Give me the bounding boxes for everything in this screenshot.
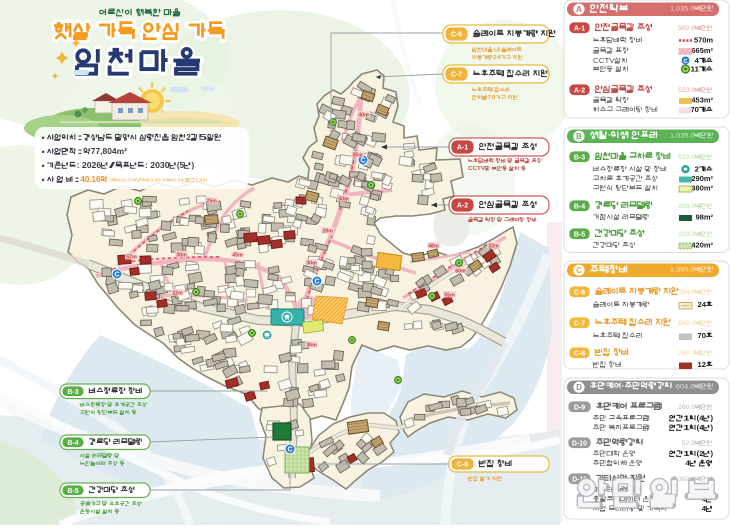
- svg-text:(5: (5: [177, 161, 185, 170]
- svg-text:: 2026: : 2026: [77, 161, 102, 170]
- svg-text:1,035.0: 1,035.0: [670, 133, 695, 140]
- svg-text:B-5: B-5: [574, 232, 585, 239]
- svg-text:A-1: A-1: [457, 145, 468, 152]
- svg-text:840.0: 840.0: [678, 320, 696, 327]
- svg-text:C-6: C-6: [451, 32, 462, 39]
- svg-text:218.3: 218.3: [678, 231, 696, 238]
- svg-text:CCTV: CCTV: [468, 166, 485, 172]
- svg-text:B-3: B-3: [574, 155, 585, 162]
- svg-text:C: C: [576, 266, 582, 275]
- svg-text:12: 12: [697, 360, 705, 369]
- svg-text:24: 24: [697, 300, 706, 309]
- svg-text:A-1: A-1: [574, 26, 585, 33]
- svg-text:B-5: B-5: [67, 488, 78, 495]
- svg-text:A-2: A-2: [457, 203, 468, 210]
- svg-text:3.45 /: 3.45 /: [150, 177, 165, 182]
- svg-text:1,035.0: 1,035.0: [670, 6, 695, 13]
- svg-text:B-4: B-4: [574, 204, 585, 211]
- svg-text:160.0: 160.0: [678, 404, 696, 411]
- svg-text:30m: 30m: [306, 260, 317, 266]
- svg-text:): ): [191, 161, 194, 170]
- svg-text:C: C: [684, 59, 688, 65]
- svg-text:453m²: 453m²: [691, 96, 713, 105]
- svg-text:28m: 28m: [322, 228, 333, 234]
- svg-text:C: C: [314, 279, 319, 286]
- svg-text:A: A: [576, 5, 582, 14]
- svg-text:B: B: [576, 132, 582, 141]
- svg-text:: 2030: : 2030: [145, 161, 170, 170]
- svg-text:(2: (2: [697, 449, 704, 458]
- svg-text:B-3: B-3: [67, 389, 78, 396]
- svg-text:·: ·: [622, 380, 625, 390]
- svg-text:C-8: C-8: [574, 351, 585, 358]
- svg-text:298.0: 298.0: [678, 203, 696, 210]
- svg-text:50m: 50m: [338, 196, 349, 202]
- svg-text:11: 11: [690, 65, 698, 74]
- svg-text:B-4: B-4: [67, 440, 78, 447]
- svg-text:420m²: 420m²: [691, 241, 713, 250]
- svg-text:CCTV: CCTV: [593, 56, 615, 65]
- svg-text:1: 1: [683, 449, 689, 458]
- svg-text:533.0: 533.0: [678, 87, 696, 94]
- svg-text:380m²: 380m²: [691, 184, 713, 193]
- svg-text:260.0: 260.0: [678, 350, 696, 357]
- svg-text:8.04 /: 8.04 /: [173, 177, 188, 182]
- svg-text:A-2: A-2: [574, 88, 585, 95]
- svg-text:77,804m²: 77,804m²: [91, 147, 128, 156]
- svg-text:264.0: 264.0: [678, 289, 696, 296]
- svg-text:52.0: 52.0: [682, 440, 696, 447]
- svg-text:C-7: C-7: [574, 321, 585, 328]
- svg-text:D-9: D-9: [574, 405, 585, 412]
- svg-text:D: D: [576, 383, 582, 392]
- svg-text:25m: 25m: [206, 198, 217, 204]
- svg-text:26.87: 26.87: [120, 177, 133, 182]
- svg-text:C-8: C-8: [457, 462, 468, 469]
- svg-text:24: 24: [493, 55, 502, 61]
- svg-text:604.0: 604.0: [676, 384, 695, 391]
- svg-text:(4: (4: [697, 414, 705, 423]
- svg-text:40m: 40m: [358, 112, 369, 118]
- svg-text:C-7: C-7: [451, 72, 462, 79]
- svg-text:98m²: 98m²: [696, 213, 714, 222]
- svg-text:32m: 32m: [488, 243, 499, 249]
- svg-text:C: C: [360, 158, 365, 165]
- svg-text:40.16: 40.16: [80, 175, 101, 184]
- svg-text:5: 5: [198, 133, 208, 142]
- svg-text:1: 1: [683, 414, 689, 423]
- svg-text:35m: 35m: [352, 152, 363, 158]
- svg-text::: :: [74, 175, 81, 184]
- svg-text:30m: 30m: [176, 252, 187, 258]
- svg-text:(4: (4: [697, 423, 705, 432]
- svg-text:60m: 60m: [455, 268, 466, 274]
- svg-text:70: 70: [488, 95, 496, 101]
- svg-text:48m: 48m: [428, 243, 439, 249]
- svg-text::: :: [77, 133, 84, 142]
- svg-text:2: 2: [186, 133, 191, 142]
- svg-text:1: 1: [683, 423, 689, 432]
- svg-text::: :: [77, 147, 84, 156]
- svg-text:570m: 570m: [694, 36, 713, 45]
- svg-text:C-6: C-6: [574, 290, 585, 297]
- svg-text:57m: 57m: [126, 254, 137, 260]
- svg-text:55m: 55m: [444, 292, 455, 298]
- svg-text:45m: 45m: [232, 252, 243, 258]
- svg-text:36m: 36m: [306, 342, 317, 348]
- svg-text:502.0: 502.0: [678, 25, 696, 32]
- svg-text:522.0: 522.0: [678, 154, 696, 161]
- svg-text:·: ·: [608, 129, 611, 140]
- svg-text:1.88): 1.88): [196, 177, 208, 182]
- svg-text:C: C: [114, 272, 119, 279]
- svg-text:665m²: 665m²: [691, 46, 713, 55]
- svg-text:290m²: 290m²: [691, 174, 713, 183]
- svg-text:C: C: [287, 447, 292, 454]
- svg-text:D-10: D-10: [572, 441, 587, 448]
- svg-text:22m: 22m: [172, 290, 183, 296]
- svg-text:1,360.0: 1,360.0: [670, 267, 695, 274]
- svg-text:70: 70: [697, 331, 705, 340]
- svg-text:2: 2: [695, 165, 699, 174]
